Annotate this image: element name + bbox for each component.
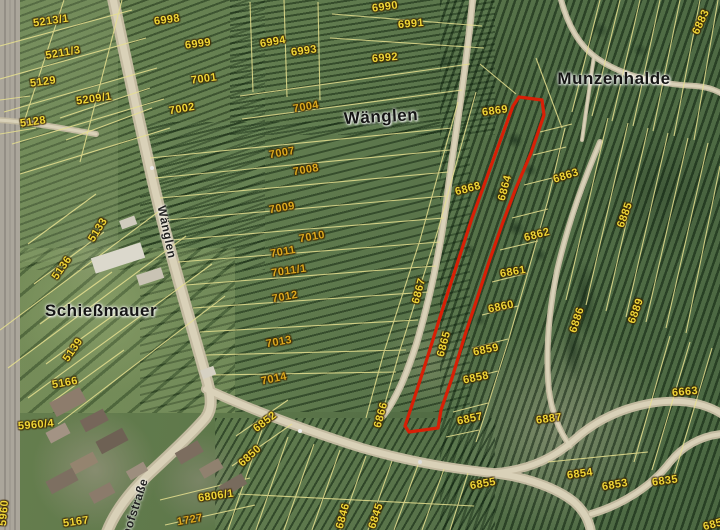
parcel-label-6999: 6999	[184, 36, 211, 52]
parcel-label-6885: 6885	[615, 201, 635, 230]
parcel-label-6869: 6869	[481, 103, 508, 119]
parcel-label-5211-3: 5211/3	[45, 44, 82, 62]
parcel-label-5136: 5136	[50, 254, 75, 282]
parcel-label-6861: 6861	[499, 264, 527, 280]
parcel-label-7010: 7010	[298, 229, 326, 245]
parcel-label-6993: 6993	[290, 43, 317, 59]
parcel-label-5133: 5133	[86, 216, 110, 244]
parcel-label-5166: 5166	[51, 375, 79, 391]
parcel-label-7014: 7014	[260, 370, 288, 387]
parcel-label-6992: 6992	[371, 51, 398, 65]
place-label-munzenhalde: Munzenhalde	[557, 69, 670, 89]
parcel-label-6853: 6853	[601, 477, 629, 493]
parcel-label-7008: 7008	[292, 162, 320, 178]
parcel-label-6663: 6663	[671, 385, 698, 399]
place-label-schießmauer: Schießmauer	[45, 301, 157, 321]
place-label-wänglen: Wänglen	[343, 105, 418, 129]
parcel-label-6889: 6889	[626, 297, 646, 326]
parcel-label-6866: 6866	[372, 401, 390, 429]
parcel-label-5960: 5960	[0, 499, 11, 526]
parcel-label-6863: 6863	[552, 166, 581, 185]
parcel-label-5213-1: 5213/1	[32, 13, 69, 30]
parcel-label-7009: 7009	[268, 200, 296, 216]
parcel-label-5209-1: 5209/1	[75, 91, 112, 108]
parcel-label-7012: 7012	[271, 289, 299, 305]
parcel-label-6855: 6855	[469, 476, 497, 492]
parcel-label-7007: 7007	[268, 145, 296, 161]
parcel-label-6851: 6851	[702, 515, 720, 530]
parcel-label-6868: 6868	[454, 180, 482, 198]
parcel-label-6852: 6852	[251, 409, 279, 435]
parcel-label-6835: 6835	[651, 473, 678, 489]
parcel-label-5167: 5167	[62, 514, 89, 530]
parcel-label-7013: 7013	[265, 334, 293, 350]
parcel-label-6887: 6887	[535, 411, 562, 427]
aerial-map[interactable]: 5213/1699869995211/3700151295209/1700251…	[0, 0, 720, 530]
parcel-label-6998: 6998	[153, 12, 180, 28]
parcel-label-6850: 6850	[236, 443, 263, 469]
parcel-label-6883: 6883	[690, 8, 712, 37]
parcel-label-6862: 6862	[523, 226, 551, 244]
parcel-label-5960-4: 5960/4	[18, 417, 55, 432]
parcel-label-6857: 6857	[456, 410, 484, 427]
parcel-label-7011-1: 7011/1	[271, 263, 308, 280]
parcel-label-5128: 5128	[19, 114, 46, 130]
parcel-label-6865: 6865	[435, 330, 453, 358]
parcel-label-6994: 6994	[259, 34, 287, 50]
parcel-label-7011: 7011	[269, 244, 296, 260]
parcel-label-6806-1: 6806/1	[197, 488, 234, 505]
parcel-label-6864: 6864	[496, 174, 514, 202]
map-labels: 5213/1699869995211/3700151295209/1700251…	[0, 0, 720, 530]
parcel-label-6990: 6990	[371, 0, 398, 15]
parcel-label-6845: 6845	[366, 502, 385, 530]
parcel-label-6859: 6859	[472, 341, 500, 358]
parcel-label-6846: 6846	[334, 502, 352, 530]
parcel-label-6860: 6860	[487, 298, 515, 315]
parcel-label-6886: 6886	[567, 306, 586, 335]
parcel-label-6854: 6854	[566, 466, 593, 482]
parcel-label-6991: 6991	[397, 17, 424, 31]
parcel-label-5129: 5129	[29, 74, 56, 90]
street-label-wänglen: Wänglen	[155, 204, 180, 259]
parcel-label-7004: 7004	[292, 99, 320, 115]
parcel-label-5139: 5139	[61, 336, 86, 364]
parcel-label-7001: 7001	[190, 71, 217, 87]
parcel-label-6867: 6867	[410, 277, 428, 305]
parcel-label-6858: 6858	[462, 369, 490, 386]
parcel-label-1727: 1727	[176, 512, 204, 528]
parcel-label-7002: 7002	[168, 101, 196, 117]
street-label-hofstraße: hofstraße	[119, 477, 151, 530]
